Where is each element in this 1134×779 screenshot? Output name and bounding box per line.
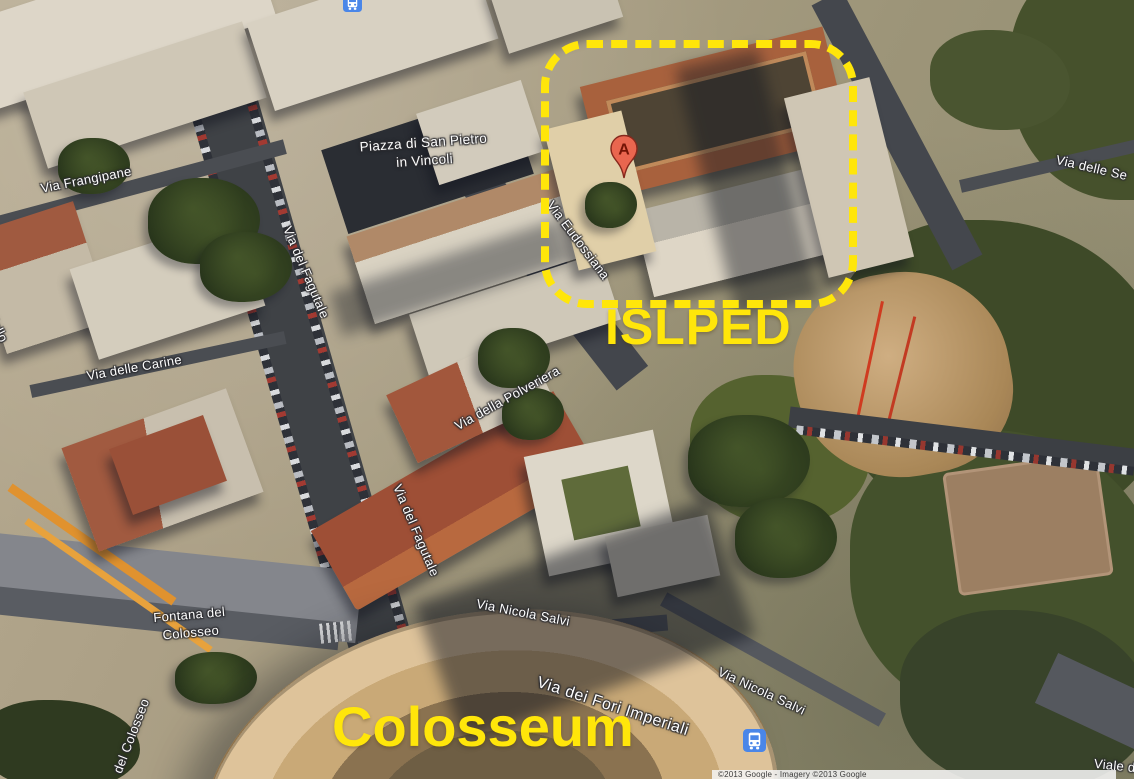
highlight-dashed-box <box>541 40 857 308</box>
map-marker-a[interactable]: A <box>609 134 639 180</box>
bus-transit-icon[interactable] <box>743 729 766 752</box>
venue-annotation-islped: ISLPED <box>605 298 792 356</box>
sports-field <box>942 452 1114 597</box>
landmark-annotation-colosseum: Colosseum <box>332 694 634 759</box>
satellite-map-canvas[interactable]: Piazza di San Pietro in Vincoli Via Fran… <box>0 0 1134 779</box>
street-label-fontana-del-colosseo: Fontana del Colosseo <box>139 602 242 646</box>
bus-transit-icon[interactable] <box>343 0 362 12</box>
map-attribution: ©2013 Google - Imagery ©2013 Google <box>712 770 1116 779</box>
tree-canopy <box>175 652 257 704</box>
building-block <box>247 0 499 111</box>
zebra-crossing <box>319 620 355 643</box>
tree-canopy <box>735 498 837 578</box>
marker-letter: A <box>618 142 630 159</box>
